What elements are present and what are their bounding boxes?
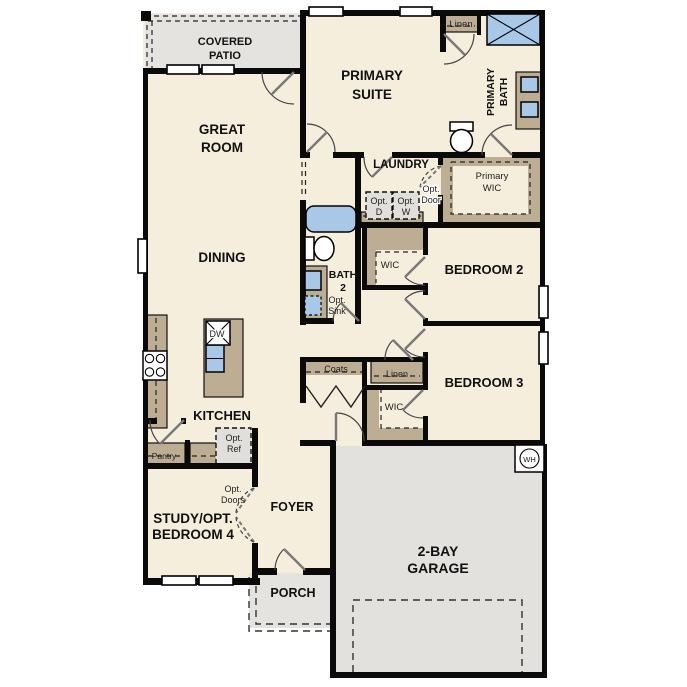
window-study-1 <box>162 576 196 585</box>
wall-hall-south <box>300 440 336 446</box>
wall-suite-left <box>300 10 306 158</box>
wall-hall-seg <box>423 228 428 255</box>
wall-bath2-bottom <box>300 318 334 324</box>
wall-wic3-top <box>362 385 428 390</box>
bath2-sink <box>305 271 321 290</box>
bathtub <box>306 206 356 232</box>
wall-linen-stub <box>477 15 481 35</box>
window-suite-1 <box>309 7 343 16</box>
wall-wic2-left <box>362 228 367 290</box>
wall-bed2-bed3-divider <box>423 321 545 326</box>
wall-wic-left-a <box>438 152 443 165</box>
wall-seg <box>512 152 545 158</box>
wall-bath2-right <box>355 152 361 318</box>
bath2-toilet-bowl <box>314 237 334 261</box>
window-suite-2 <box>400 7 432 16</box>
wall-pantry-right <box>185 440 190 467</box>
wall-study-top <box>143 463 258 469</box>
wall-garage-left <box>330 446 336 672</box>
wall-garage-bottom <box>330 672 547 678</box>
wall-seg <box>300 152 310 158</box>
covered-patio-floor <box>145 14 302 72</box>
garage-floor <box>336 446 542 672</box>
bath2-opt-sink <box>305 296 321 315</box>
floor-fills <box>143 13 545 672</box>
wall-foyer-west-a <box>252 428 258 487</box>
wall-garage-right <box>542 444 547 678</box>
primary-sink-2 <box>521 102 538 117</box>
linen-hall-closet <box>371 360 423 383</box>
wall-left-exterior <box>143 68 148 585</box>
porch-floor <box>249 573 330 628</box>
window-dining <box>138 239 147 273</box>
wall-bed2-top <box>355 222 545 228</box>
opt-washer-box <box>393 192 419 219</box>
primary-sink-1 <box>521 77 538 92</box>
pantry-closet <box>145 443 185 466</box>
window-bedroom3 <box>539 332 548 364</box>
linen-upper-closet <box>444 15 478 32</box>
patio-post <box>141 11 151 21</box>
floor-plan-drawing: COVERED PATIO GREAT ROOM PRIMARY SUITE L… <box>0 0 687 687</box>
floor-plan-page: COVERED PATIO GREAT ROOM PRIMARY SUITE L… <box>0 0 687 687</box>
wall-front-west <box>255 568 277 575</box>
window-study-2 <box>199 576 233 585</box>
wall-suite-bath-divider <box>440 10 446 52</box>
window-greatroom-2 <box>202 65 234 74</box>
opt-fridge-box <box>216 428 251 467</box>
wall-front-east <box>303 568 335 575</box>
primary-wic-floor <box>453 166 528 214</box>
wic-bed3-floor <box>379 385 423 428</box>
opt-dryer-box <box>366 192 392 219</box>
wall-coats-right <box>362 357 367 385</box>
wall-coats-left <box>300 357 306 403</box>
bath2-toilet-tank <box>305 237 314 260</box>
coats-shelf <box>303 362 365 375</box>
window-greatroom-1 <box>167 65 199 74</box>
primary-toilet-bowl <box>451 130 473 153</box>
wall-wic2-bottom <box>362 285 428 290</box>
window-bedroom2 <box>539 286 548 318</box>
